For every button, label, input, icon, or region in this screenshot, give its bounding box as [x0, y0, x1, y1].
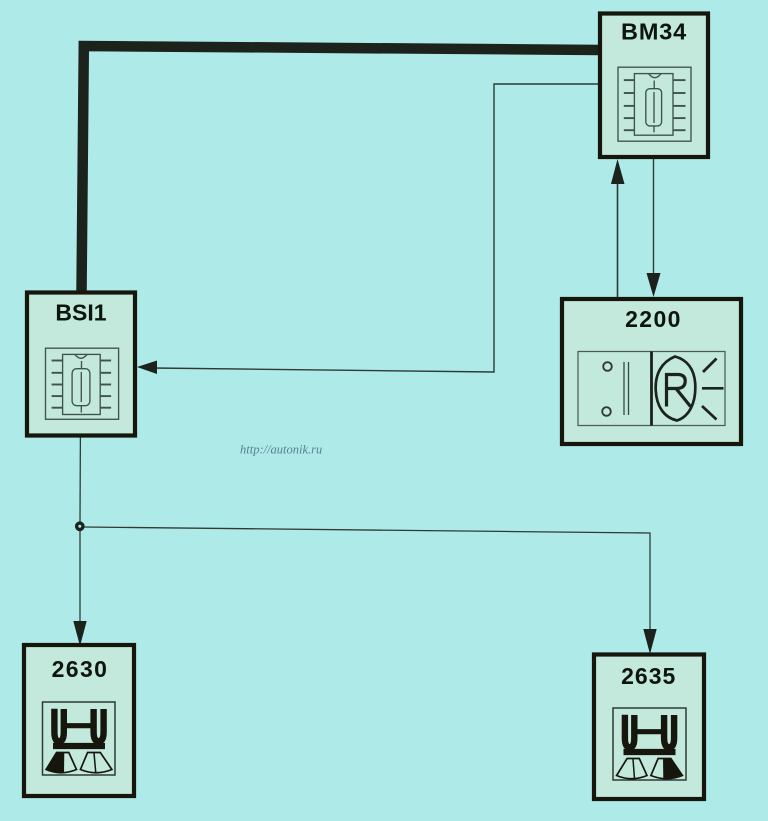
svg-text:BSI1: BSI1	[55, 300, 106, 326]
svg-text:BM34: BM34	[621, 19, 687, 45]
svg-text:http://autonik.ru: http://autonik.ru	[240, 443, 322, 457]
svg-text:2200: 2200	[625, 306, 682, 332]
svg-text:2630: 2630	[52, 656, 109, 682]
svg-text:2635: 2635	[621, 663, 676, 689]
